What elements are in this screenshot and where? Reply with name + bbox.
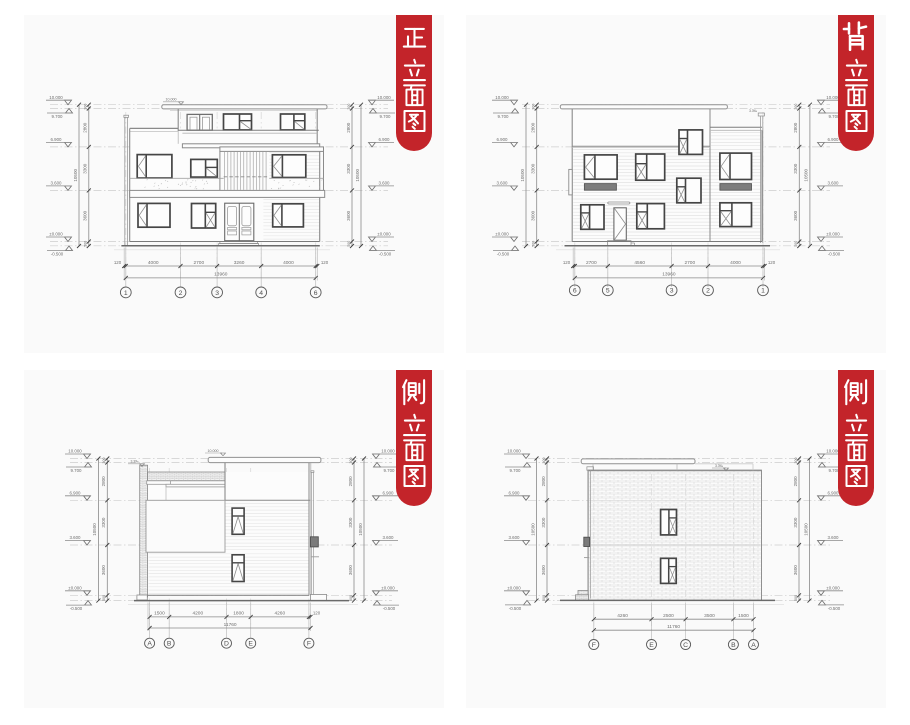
svg-text:10500: 10500 [92,523,97,536]
svg-text:1: 1 [761,288,765,295]
svg-text:500: 500 [347,241,351,247]
svg-text:6: 6 [314,290,318,297]
svg-text:3.600: 3.600 [383,535,395,540]
svg-text:F: F [307,641,311,648]
svg-text:2800: 2800 [531,122,536,133]
svg-text:±0.000: ±0.000 [381,586,395,591]
svg-text:1: 1 [124,290,128,297]
svg-text:10.000: 10.000 [381,449,395,454]
svg-text:4000: 4000 [148,260,159,266]
svg-text:±0.000: ±0.000 [495,232,509,237]
svg-text:300: 300 [542,458,546,464]
svg-text:3600: 3600 [101,565,106,576]
svg-text:500: 500 [349,595,353,601]
svg-text:1500: 1500 [738,613,749,619]
svg-text:A: A [751,642,756,649]
svg-text:2800: 2800 [101,476,106,487]
svg-text:A: A [147,641,152,648]
svg-text:B: B [731,642,736,649]
svg-text:300: 300 [794,458,798,464]
svg-text:3300: 3300 [348,517,353,528]
svg-text:120: 120 [313,611,321,616]
svg-text:3.600: 3.600 [828,181,840,186]
svg-text:3.600: 3.600 [51,181,63,186]
svg-text:-0.500: -0.500 [379,252,392,257]
svg-text:3300: 3300 [541,517,546,528]
svg-text:3300: 3300 [101,517,106,528]
svg-text:9.700: 9.700 [498,114,510,119]
svg-text:300: 300 [532,104,536,110]
svg-text:F: F [592,642,596,649]
svg-text:2800: 2800 [348,476,353,487]
svg-text:300: 300 [84,104,88,110]
svg-text:120: 120 [768,260,776,265]
svg-text:10.000: 10.000 [49,95,63,100]
svg-text:3600: 3600 [346,210,351,221]
svg-text:11760: 11760 [224,622,237,628]
svg-text:2800: 2800 [346,122,351,133]
svg-text:E: E [248,641,253,648]
svg-text:13960: 13960 [662,272,676,278]
svg-text:3.3‰: 3.3‰ [749,109,758,113]
svg-text:±0.000: ±0.000 [507,586,521,591]
svg-text:3600: 3600 [541,565,546,576]
svg-text:3.3‰: 3.3‰ [715,464,724,468]
svg-text:±0.000: ±0.000 [49,232,63,237]
svg-text:1500: 1500 [154,611,165,617]
svg-text:3300: 3300 [531,163,536,174]
svg-text:3.600: 3.600 [828,535,840,540]
svg-text:-0.500: -0.500 [509,606,522,611]
svg-text:2700: 2700 [586,260,597,266]
svg-text:10.000: 10.000 [507,449,521,454]
svg-text:9.700: 9.700 [384,468,396,473]
svg-text:2: 2 [706,288,710,295]
svg-text:500: 500 [102,595,106,601]
svg-text:10.000: 10.000 [377,95,391,100]
svg-text:500: 500 [532,241,536,247]
svg-text:3300: 3300 [83,163,88,174]
svg-text:10500: 10500 [804,169,809,182]
svg-text:9.700: 9.700 [52,114,64,119]
svg-text:3.3‰: 3.3‰ [130,460,139,464]
svg-text:4560: 4560 [634,260,645,266]
svg-text:6.900: 6.900 [383,491,395,496]
svg-text:2: 2 [179,290,183,297]
svg-text:2700: 2700 [193,260,204,266]
svg-text:D: D [224,641,229,648]
svg-text:-0.500: -0.500 [51,252,64,257]
svg-text:10500: 10500 [530,523,535,536]
svg-text:3600: 3600 [531,210,536,221]
svg-text:±0.000: ±0.000 [68,586,82,591]
svg-text:3600: 3600 [83,210,88,221]
svg-text:C: C [683,642,688,649]
svg-text:500: 500 [794,595,798,601]
svg-text:2800: 2800 [793,476,798,487]
svg-text:10500: 10500 [520,169,525,182]
svg-text:3300: 3300 [793,517,798,528]
svg-text:±0.000: ±0.000 [826,232,840,237]
svg-text:10.000: 10.000 [495,95,509,100]
svg-text:10.000: 10.000 [166,98,177,102]
svg-text:B: B [167,641,172,648]
svg-text:E: E [649,642,654,649]
svg-text:3: 3 [215,290,219,297]
svg-text:4: 4 [259,290,263,297]
svg-text:3: 3 [670,288,674,295]
svg-text:±0.000: ±0.000 [826,586,840,591]
svg-text:-0.500: -0.500 [70,606,83,611]
svg-text:-0.500: -0.500 [828,252,841,257]
svg-text:3260: 3260 [234,260,245,266]
svg-text:6: 6 [573,288,577,295]
svg-text:10500: 10500 [358,523,363,536]
svg-text:10.000: 10.000 [68,449,82,454]
svg-text:-0.500: -0.500 [828,606,841,611]
svg-text:6.900: 6.900 [497,137,509,142]
svg-text:500: 500 [794,241,798,247]
svg-text:4200: 4200 [192,611,203,617]
svg-text:10500: 10500 [355,169,360,182]
svg-text:500: 500 [542,595,546,601]
svg-text:6.900: 6.900 [509,491,521,496]
svg-text:2800: 2800 [83,122,88,133]
svg-text:300: 300 [347,104,351,110]
svg-text:120: 120 [563,260,571,265]
svg-text:2700: 2700 [684,260,695,266]
svg-text:3300: 3300 [793,163,798,174]
svg-text:3500: 3500 [704,613,715,619]
svg-text:120: 120 [114,260,122,265]
svg-text:10.000: 10.000 [208,449,219,453]
svg-text:±0.000: ±0.000 [377,232,391,237]
svg-text:3600: 3600 [793,210,798,221]
svg-text:5: 5 [606,288,610,295]
svg-text:9.700: 9.700 [71,468,83,473]
svg-text:3.600: 3.600 [379,181,391,186]
svg-text:3600: 3600 [793,565,798,576]
svg-text:2500: 2500 [663,613,674,619]
svg-text:3300: 3300 [346,163,351,174]
svg-text:10500: 10500 [73,169,78,182]
svg-text:-0.500: -0.500 [497,252,510,257]
svg-text:-0.500: -0.500 [383,606,396,611]
svg-text:3.600: 3.600 [509,535,521,540]
svg-text:2800: 2800 [541,476,546,487]
svg-text:3.600: 3.600 [497,181,509,186]
svg-text:6.900: 6.900 [70,491,82,496]
svg-text:3.600: 3.600 [70,535,82,540]
svg-text:300: 300 [349,458,353,464]
svg-text:3600: 3600 [348,565,353,576]
svg-text:9.700: 9.700 [510,468,522,473]
svg-text:300: 300 [102,458,106,464]
svg-text:1800: 1800 [233,611,244,617]
svg-text:300: 300 [794,104,798,110]
svg-text:4260: 4260 [274,611,285,617]
svg-text:120: 120 [321,260,329,265]
svg-text:2800: 2800 [793,122,798,133]
svg-text:4000: 4000 [730,260,741,266]
svg-text:11760: 11760 [667,624,680,630]
svg-text:9.700: 9.700 [380,114,392,119]
svg-text:4260: 4260 [617,613,628,619]
svg-text:6.900: 6.900 [51,137,63,142]
svg-text:13960: 13960 [214,272,228,278]
svg-text:500: 500 [84,241,88,247]
svg-text:6.900: 6.900 [379,137,391,142]
svg-text:10500: 10500 [803,523,808,536]
svg-text:4000: 4000 [283,260,294,266]
